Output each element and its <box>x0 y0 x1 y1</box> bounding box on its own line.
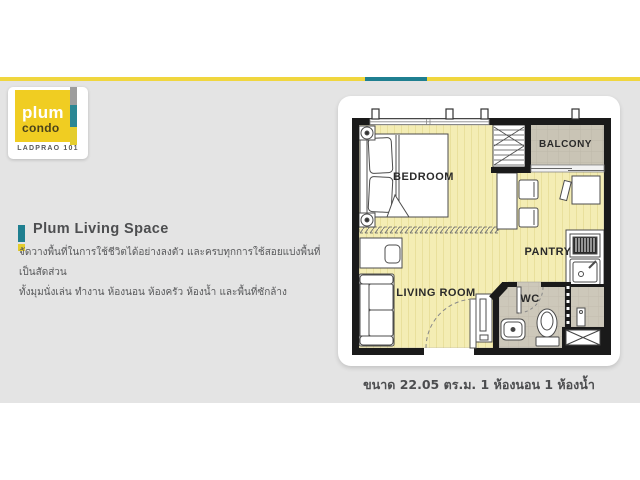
label-wc: WC <box>520 293 539 305</box>
brand-logo: plum condo LADPRAO 101 <box>8 87 88 159</box>
balcony-sliding-door <box>531 165 604 172</box>
wall-fixture-top <box>359 126 375 140</box>
wash-basin <box>501 319 525 340</box>
sofa <box>359 274 394 346</box>
logo-bar-teal <box>70 105 77 127</box>
floor-plan-card: BEDROOM BALCONY PANTRY WC LIVING ROOM <box>338 96 620 366</box>
tv-stand <box>476 294 492 342</box>
logo-subtitle: LADPRAO 101 <box>8 145 88 152</box>
service-fixture <box>577 308 585 326</box>
unit-size-caption: ขนาด 22.05 ตร.ม. 1 ห้องนอน 1 ห้องน้ำ <box>338 375 620 395</box>
logo-text-condo: condo <box>22 122 60 134</box>
sliding-partition <box>359 227 498 233</box>
wardrobe <box>493 125 525 167</box>
bedroom-windows <box>370 119 489 125</box>
label-pantry: PANTRY <box>525 246 572 258</box>
label-bedroom: BEDROOM <box>393 171 454 183</box>
logo-text-plum: plum <box>22 104 64 121</box>
section-description: จัดวางพื้นที่ในการใช้ชีวิตได้อย่างลงตัว … <box>19 243 335 303</box>
entry-opening <box>424 348 474 355</box>
floor-plan-image: BEDROOM BALCONY PANTRY WC LIVING ROOM <box>338 96 620 366</box>
section-description-line1: จัดวางพื้นที่ในการใช้ชีวิตได้อย่างลงตัว … <box>19 243 335 283</box>
top-accent-bar-yellow <box>0 77 640 81</box>
section-title: Plum Living Space <box>33 221 169 237</box>
label-living-room: LIVING ROOM <box>396 287 475 299</box>
shaft <box>562 327 604 348</box>
entry-door-leaf <box>470 299 476 348</box>
page: plum condo LADPRAO 101 Plum Living Space… <box>0 0 640 480</box>
living-desk <box>360 238 402 268</box>
logo-bar-yellow <box>70 127 77 145</box>
toilet <box>536 309 559 346</box>
logo-bar-gray <box>70 87 77 105</box>
wall-fixture-bottom <box>359 213 375 227</box>
logo-square: plum condo <box>15 90 72 142</box>
label-balcony: BALCONY <box>539 139 592 150</box>
column-stubs <box>372 109 579 119</box>
section-description-line2: ทั้งมุมนั่งเล่น ทำงาน ห้องนอน ห้องครัว ห… <box>19 283 335 303</box>
kitchen-counter <box>566 230 604 286</box>
top-accent-bar-teal <box>365 77 427 81</box>
section-bullet-teal <box>18 225 25 242</box>
